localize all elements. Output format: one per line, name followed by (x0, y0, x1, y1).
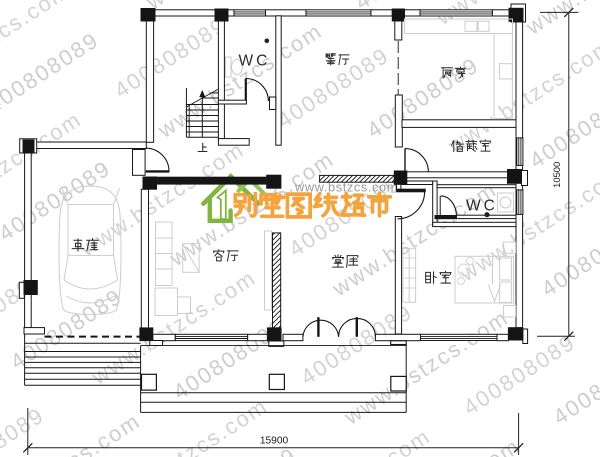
svg-text:www.bstzcs.com: www.bstzcs.com (521, 0, 600, 40)
svg-text:WC: WC (239, 53, 271, 70)
svg-text:15900: 15900 (260, 436, 289, 447)
svg-text:10500: 10500 (551, 162, 562, 188)
svg-text:400808089: 400808089 (0, 402, 49, 457)
svg-text:400808089: 400808089 (0, 27, 103, 118)
svg-text:WC: WC (466, 198, 498, 215)
